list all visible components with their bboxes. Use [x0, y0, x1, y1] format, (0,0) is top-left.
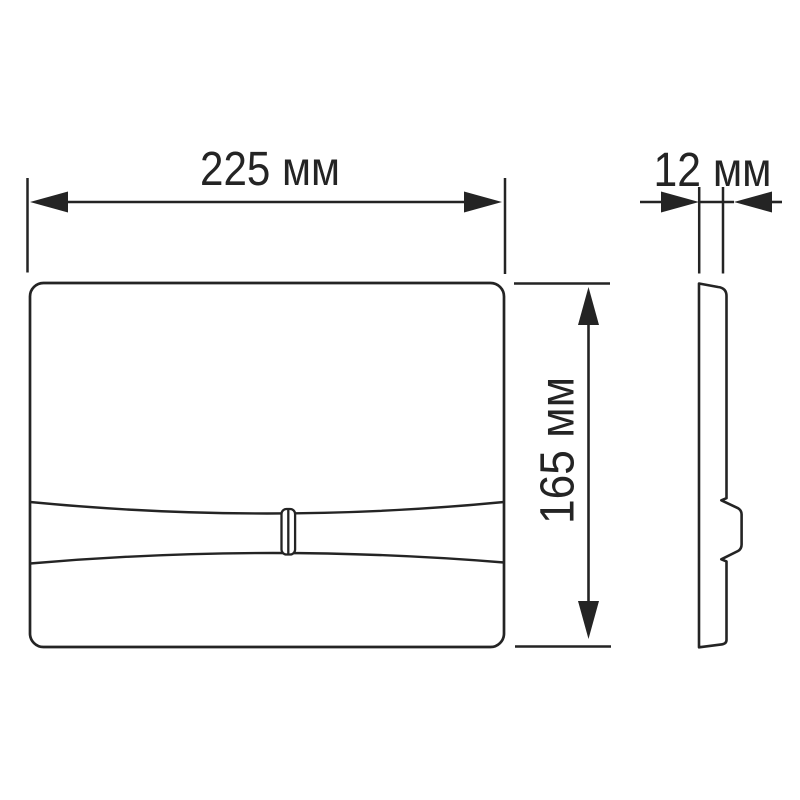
svg-text:225 мм: 225 мм [200, 143, 340, 196]
svg-text:165 мм: 165 мм [532, 377, 585, 524]
svg-text:12 мм: 12 мм [654, 144, 772, 197]
